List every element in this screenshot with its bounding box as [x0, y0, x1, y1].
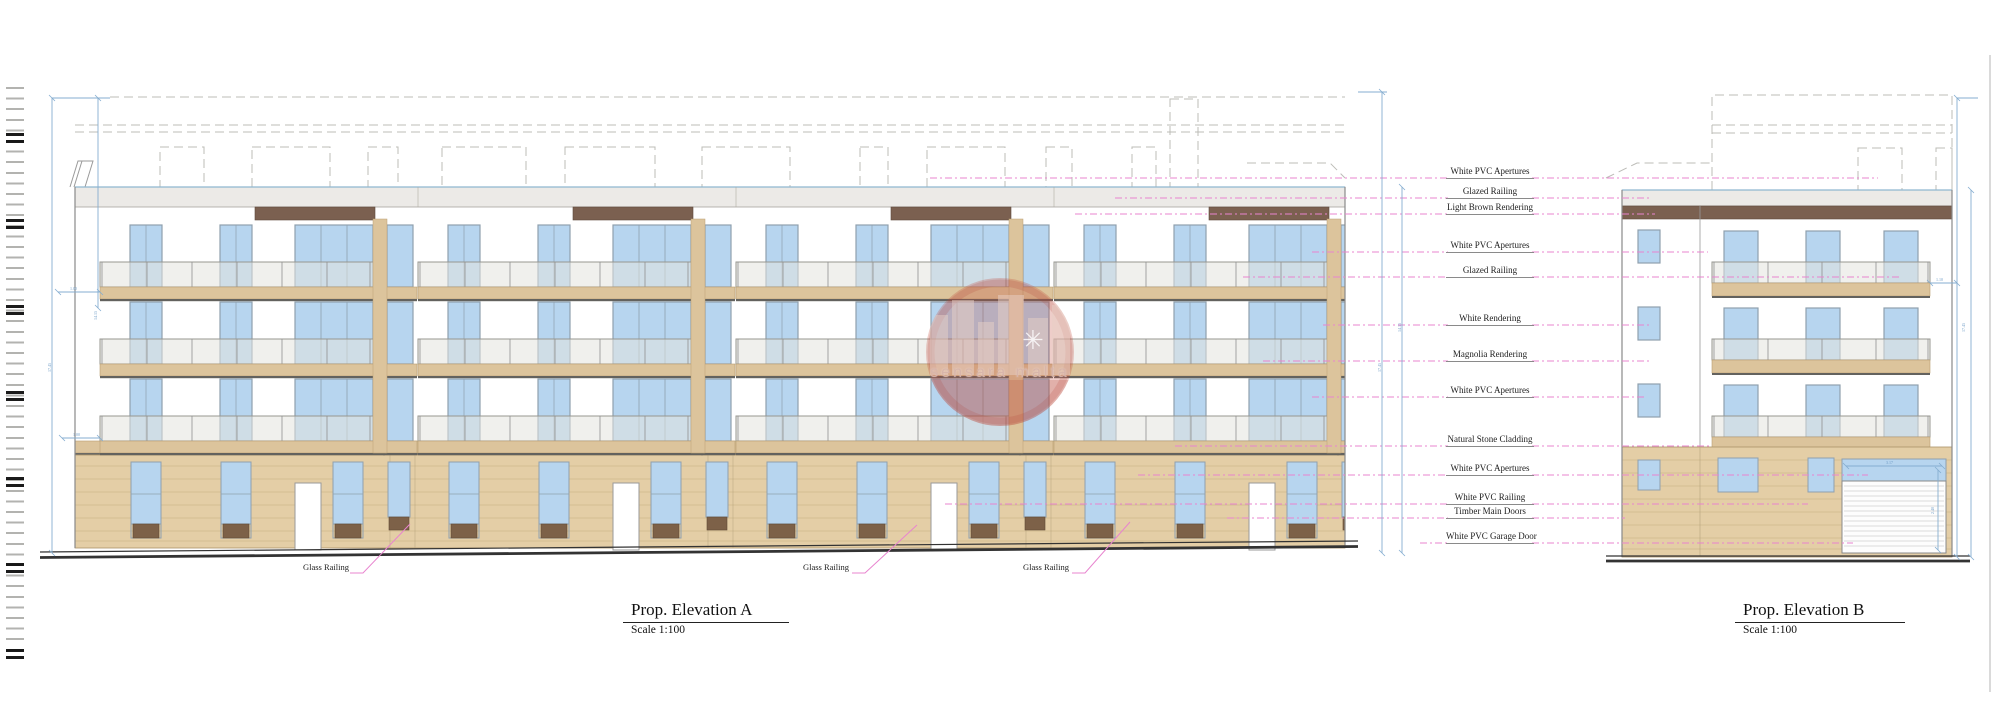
elevation-a-scale: Scale 1:100	[631, 624, 685, 636]
roof-setback-dashed-outlines-b	[1606, 95, 1952, 190]
annotation-white-pvc-apertures-3: White PVC Apertures	[1446, 385, 1534, 398]
balcony-railings-b	[1712, 262, 1930, 452]
dim-garage-height: 2.40	[1930, 507, 1935, 514]
callout-glass-railing-1: Glass Railing	[298, 562, 354, 572]
annotation-white-pvc-garage-door: White PVC Garage Door	[1446, 531, 1534, 544]
garage-transom-window	[1842, 459, 1946, 481]
dim-balcony-depth-b: 1.10	[1936, 277, 1943, 282]
dim-garage-width: 3.17	[1886, 460, 1893, 465]
dim-height-left-inner: 14.15	[93, 311, 98, 320]
dim-height-b-right: 17.45	[1961, 323, 1966, 332]
chimney-outline	[70, 161, 93, 187]
roof-setback-dashed-outlines	[75, 97, 1345, 187]
parapet-band-b	[1622, 190, 1952, 206]
elevation-linework	[0, 0, 2000, 722]
callout-glass-railing-2: Glass Railing	[798, 562, 854, 572]
dim-balcony-depth-lower: 1.00	[73, 432, 80, 437]
annotation-white-pvc-railing: White PVC Railing	[1446, 492, 1534, 505]
annotation-timber-main-doors: Timber Main Doors	[1446, 506, 1534, 519]
parapet-band-a	[75, 187, 1345, 207]
annotation-glazed-railing-1: Glazed Railing	[1446, 186, 1534, 199]
annotation-natural-stone-cladding: Natural Stone Cladding	[1446, 434, 1534, 447]
dim-height-left-outer: 17.45	[47, 363, 52, 372]
dim-balcony-depth-upper: 1.00	[70, 286, 77, 291]
drawing-sheet: ✳ sensara malta White PVC Apertures Glaz…	[0, 0, 2000, 722]
dim-height-right-outer: 17.45	[1377, 363, 1382, 372]
elevation-b-title: Prop. Elevation B	[1735, 600, 1905, 623]
annotation-white-pvc-apertures-1: White PVC Apertures	[1446, 166, 1534, 179]
annotation-white-rendering: White Rendering	[1446, 313, 1534, 326]
watermark-text: sensara malta	[900, 364, 1100, 382]
annotation-white-pvc-apertures-4: White PVC Apertures	[1446, 463, 1534, 476]
elevation-b-drawing	[1606, 95, 1970, 561]
elevation-b-scale: Scale 1:100	[1743, 624, 1797, 636]
annotation-white-pvc-apertures-2: White PVC Apertures	[1446, 240, 1534, 253]
annotation-glazed-railing-2: Glazed Railing	[1446, 265, 1534, 278]
garage-door-b	[1842, 481, 1946, 553]
light-brown-rendering-band-b	[1622, 206, 1952, 219]
callout-glass-railing-3: Glass Railing	[1018, 562, 1074, 572]
elevation-a-drawing	[40, 97, 1371, 558]
elevation-a-title: Prop. Elevation A	[623, 600, 789, 623]
watermark-star-icon: ✳	[1022, 326, 1044, 356]
annotation-light-brown-rendering: Light Brown Rendering	[1446, 202, 1534, 215]
annotation-magnolia-rendering: Magnolia Rendering	[1446, 349, 1534, 362]
small-windows-b	[1638, 230, 1660, 417]
left-scale-strip	[6, 87, 24, 659]
dim-height-right-inner: 14.15	[1397, 323, 1402, 332]
